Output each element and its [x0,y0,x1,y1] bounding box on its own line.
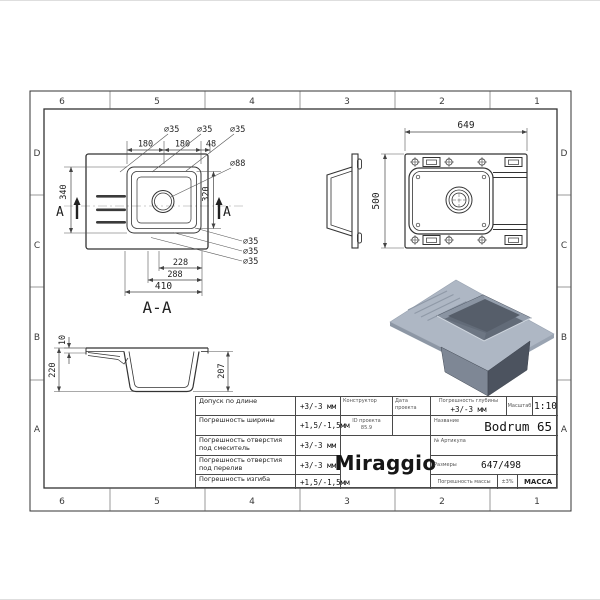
depth-tolerance-cell: Погрешность глубины +3/-3 мм [431,397,507,416]
svg-text:A: A [34,425,41,435]
svg-text:288: 288 [167,270,182,280]
article-cell: № Артикула [431,436,558,456]
designer-cell: Конструктор [341,397,393,416]
drainboard-ribs [96,195,126,224]
render-3d [390,280,554,396]
plan-hole-callouts: ∅35 ∅35 ∅35 ∅88 [120,125,245,197]
mass-tolerance-label: Погрешность массы [431,475,498,489]
size-cell: Размеры 647/498 [431,456,558,475]
svg-text:A: A [223,205,231,220]
svg-text:3: 3 [344,497,350,507]
section-view: 10 220 207 [48,335,233,392]
tolerance-value: +1,5/-1,5мм [296,475,341,489]
drawing-sheet: 6 5 4 3 2 1 6 5 4 3 2 1 D C B A D C B A [0,1,600,600]
mounting-clips [423,158,522,245]
svg-text:4: 4 [249,97,255,107]
tolerance-value: +3/-3 мм [296,397,341,416]
dim-207: 207 [193,352,233,392]
plan-dim-320: 320 [197,172,222,229]
depth-tolerance-label: Погрешность глубины [431,398,506,405]
zone-row-right: D [561,149,568,159]
svg-text:C: C [34,241,40,251]
mass-tolerance-value: ±3% [498,475,518,489]
rails [493,173,527,230]
name-label: Название [434,418,459,425]
svg-text:B: B [34,333,40,343]
svg-text:320: 320 [202,186,212,201]
plan-bottom-dims: 228 288 410 [125,251,202,296]
name-value: Bodrum 65 [484,419,552,434]
plan-view: A A 180 180 48 ∅35 ∅35 ∅35 ∅88 [56,125,258,317]
project-id-cell: ID проекта 85.9 [341,416,393,436]
tolerance-label: Допуск по длине [196,397,296,416]
tolerance-label: Погрешность ширины [196,416,296,436]
tolerance-label: Погрешность отверстия под смеситель [196,436,296,456]
svg-text:180: 180 [138,140,153,150]
svg-text:∅35: ∅35 [197,125,212,135]
zone-col-bottom: 6 [59,497,65,507]
svg-text:10: 10 [58,335,68,345]
zone-row-left: D [34,149,41,159]
project-date-cell: Дата проекта [393,397,431,416]
svg-text:∅35: ∅35 [243,247,258,257]
brand-logo: Miraggio [341,436,431,489]
svg-text:220: 220 [48,362,58,377]
depth-tolerance-value: +3/-3 мм [431,405,506,414]
drawing-page: 6 5 4 3 2 1 6 5 4 3 2 1 D C B A D C B A [0,0,600,600]
svg-text:1: 1 [534,497,540,507]
article-label: № Артикула [434,438,466,445]
svg-text:410: 410 [155,281,172,292]
svg-text:1: 1 [534,97,540,107]
svg-text:228: 228 [173,258,188,268]
plan-bottom-callouts: ∅35 ∅35 ∅35 [151,228,258,267]
svg-text:A: A [561,425,568,435]
svg-text:C: C [561,241,567,251]
project-id-value: 85.9 [341,425,392,432]
section-label: A-A [143,298,172,317]
dim-220: 220 [48,348,134,392]
svg-text:500: 500 [371,192,382,209]
mass-label: МАССА [518,475,558,489]
svg-text:5: 5 [154,497,160,507]
underside-view: 649 [405,120,527,248]
svg-text:649: 649 [457,120,474,131]
zone-col-top: 6 [59,97,65,107]
svg-text:207: 207 [217,363,227,378]
dim-10: 10 [58,335,86,364]
svg-text:∅35: ∅35 [243,237,258,247]
size-value: 647/498 [461,456,541,475]
svg-text:∅88: ∅88 [230,159,245,169]
svg-text:5: 5 [154,97,160,107]
plan-top-dims: 180 180 48 [127,140,216,165]
svg-text:4: 4 [249,497,255,507]
scale-label: Масштаб [507,397,533,416]
screw-bosses [410,157,487,245]
tolerance-value: +1,5/-1,5мм [296,416,341,436]
dim-500: 500 [371,154,404,248]
svg-text:∅35: ∅35 [164,125,179,135]
drain-circles [446,187,472,213]
side-profile-view: 500 [327,154,404,248]
svg-text:2: 2 [439,97,445,107]
svg-text:3: 3 [344,97,350,107]
svg-text:48: 48 [206,140,216,150]
svg-text:2: 2 [439,497,445,507]
scale-value: 1:10 [533,397,558,416]
tolerance-label: Погрешность изгиба [196,475,296,489]
empty-cell [393,416,431,436]
svg-text:A: A [56,205,64,220]
tolerance-label: Погрешность отверстия под перелив [196,456,296,475]
svg-text:B: B [561,333,567,343]
size-label: Размеры [434,462,457,469]
title-block: Допуск по длине +3/-3 мм Погрешность шир… [195,396,557,488]
name-cell: Название Bodrum 65 [431,416,558,436]
svg-text:∅35: ∅35 [243,257,258,267]
svg-text:∅35: ∅35 [230,125,245,135]
svg-text:340: 340 [59,184,69,199]
dim-649: 649 [405,120,527,151]
